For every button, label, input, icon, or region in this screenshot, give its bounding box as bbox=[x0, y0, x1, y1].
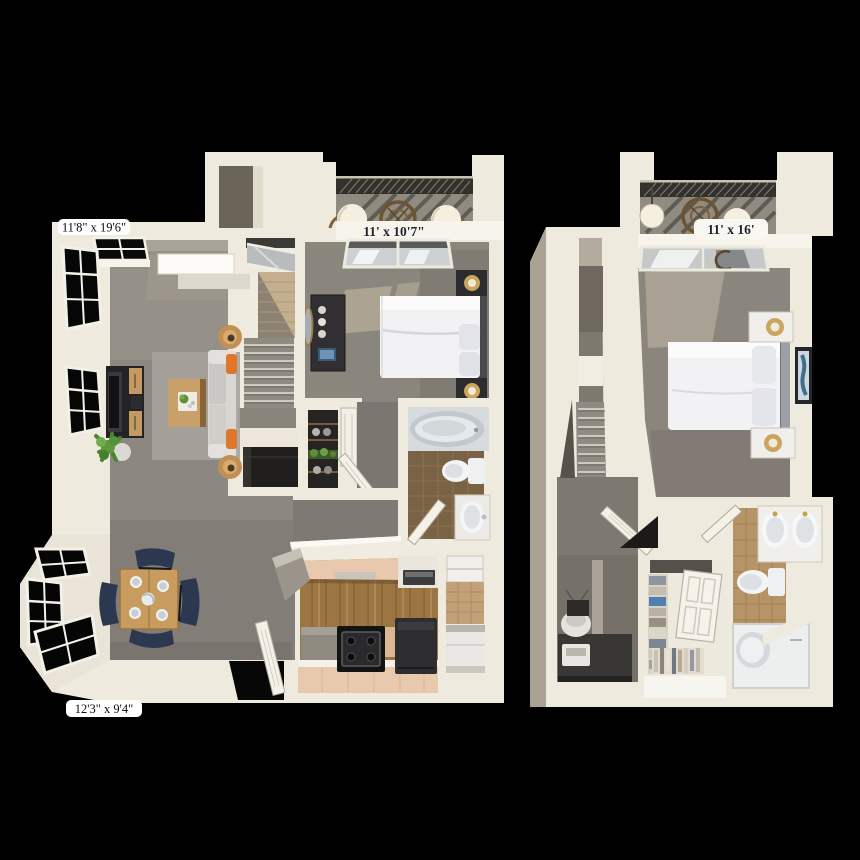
svg-text:11' x 16': 11' x 16' bbox=[707, 222, 754, 237]
svg-text:11'8" x 19'6": 11'8" x 19'6" bbox=[62, 221, 126, 235]
svg-text:11' x 10'7": 11' x 10'7" bbox=[363, 224, 425, 239]
svg-text:12'3" x 9'4": 12'3" x 9'4" bbox=[75, 702, 133, 716]
